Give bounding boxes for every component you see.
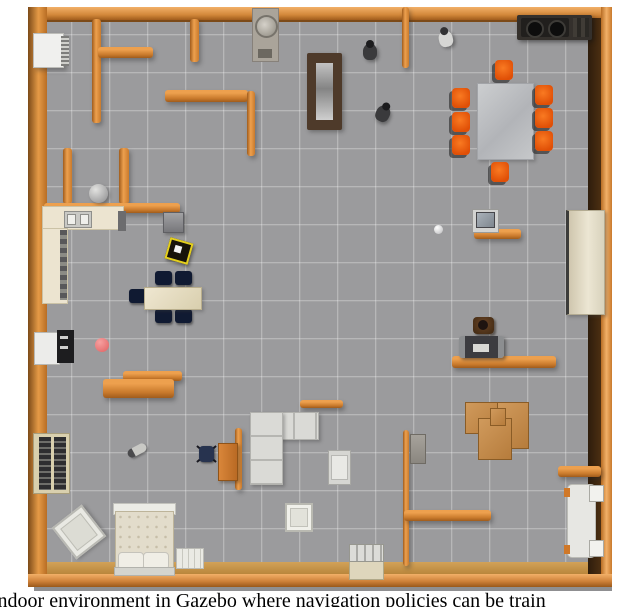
gazebo-environment-figure: [28, 0, 612, 591]
computer-monitor: [472, 209, 499, 233]
interior-wall: [92, 19, 101, 123]
fiducial-marker: [174, 245, 183, 254]
monitor-screen: [476, 212, 495, 228]
washing-machine: [252, 8, 279, 62]
navy-chair: [155, 309, 172, 323]
tall-cabinet: [566, 210, 605, 315]
person-figure: [362, 38, 378, 62]
books: [54, 437, 66, 490]
orange-chair: [535, 108, 553, 128]
office-chair: [195, 441, 217, 468]
orange-chair: [535, 131, 553, 151]
cardboard-box: [490, 408, 506, 426]
wood-shelf: [558, 466, 601, 477]
interior-wall: [98, 47, 153, 58]
interior-wall: [247, 91, 255, 156]
orange-chair: [452, 88, 470, 108]
orange-chair: [452, 135, 470, 155]
l-shaped-couch: [250, 412, 283, 485]
counter-end: [118, 211, 126, 231]
gray-box: [410, 434, 426, 464]
burner: [548, 20, 566, 38]
bed: [113, 503, 174, 574]
interior-wall: [403, 430, 409, 566]
door-panel: [307, 53, 342, 130]
ac-grill: [61, 36, 69, 66]
orange-chair: [535, 85, 553, 105]
interior-wall: [165, 90, 248, 102]
storage-cube: [163, 212, 184, 233]
white-ball: [434, 225, 443, 234]
paper-figure-page: indoor environment in Gazebo where navig…: [0, 0, 640, 607]
white-stool: [285, 503, 313, 532]
books: [39, 437, 51, 490]
orange-chair: [495, 60, 513, 80]
navy-chair: [175, 309, 192, 323]
interior-wall-post: [63, 148, 72, 204]
coffee-maker: [473, 317, 494, 334]
refrigerator-unit: [34, 330, 74, 363]
navy-chair: [175, 271, 192, 285]
dresser: [176, 548, 204, 569]
orange-chair: [491, 162, 509, 182]
conference-table: [477, 83, 534, 160]
white-bench: [567, 484, 596, 558]
orange-bench: [103, 379, 174, 398]
ac-unit: [33, 33, 64, 68]
navy-chair: [155, 271, 172, 285]
interior-wall: [402, 7, 409, 68]
interior-wall-post: [119, 148, 129, 204]
interior-wall: [404, 510, 491, 521]
red-ball: [95, 338, 109, 352]
wooden-desk: [218, 443, 238, 481]
wood-plank: [300, 400, 343, 408]
paper-tray: [473, 344, 489, 352]
stove-cooktop: [517, 15, 592, 40]
burner: [526, 20, 544, 38]
figure-caption: indoor environment in Gazebo where navig…: [0, 591, 640, 607]
orange-chair: [452, 112, 470, 132]
paper-stack: [349, 544, 382, 578]
cardboard-boxes: [465, 402, 527, 458]
kitchen-sink: [64, 211, 92, 228]
washer-drum: [255, 15, 278, 38]
door-glass: [316, 63, 333, 120]
trash-bin: [89, 184, 108, 203]
interior-wall: [190, 19, 199, 62]
dining-table: [144, 287, 202, 310]
bookshelf: [33, 433, 70, 494]
printer: [459, 336, 504, 358]
side-table: [328, 450, 351, 485]
counter-edge: [60, 230, 67, 300]
